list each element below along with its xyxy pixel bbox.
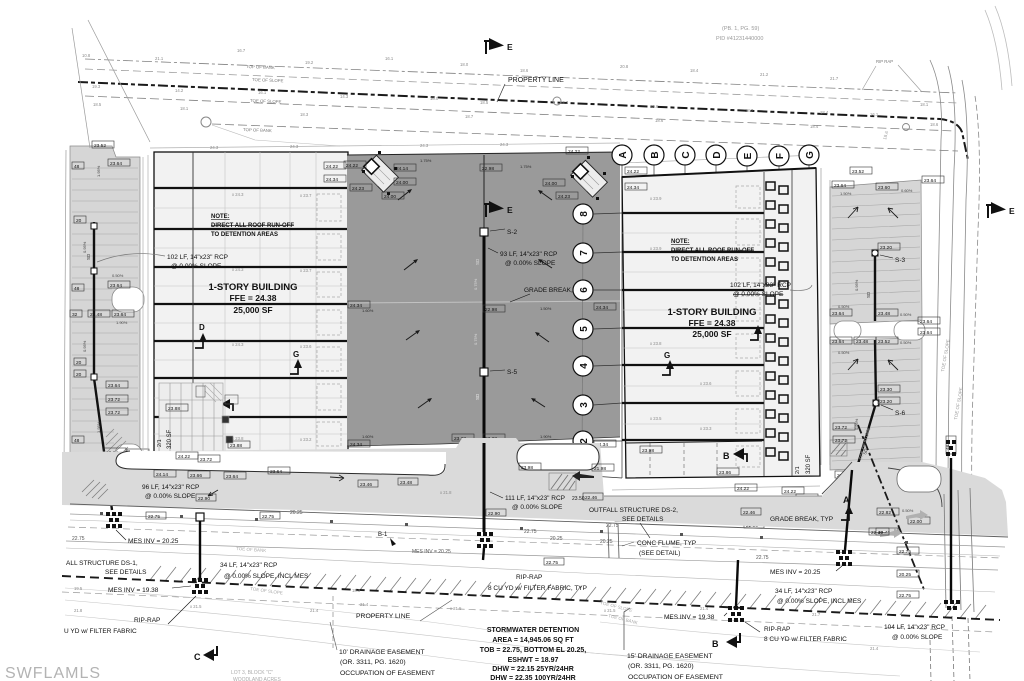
svg-text:48: 48 [74,286,80,292]
svg-text:23.98: 23.98 [642,448,654,454]
svg-text:1.60%: 1.60% [362,308,374,313]
svg-text:1.75%: 1.75% [420,158,432,163]
svg-text:22.75: 22.75 [756,555,769,561]
svg-text:3: 3 [579,402,590,408]
svg-text:SD: SD [475,258,480,265]
svg-text:23.64: 23.64 [832,339,844,345]
svg-text:25,000 SF: 25,000 SF [233,305,272,315]
svg-text:x 24.3: x 24.3 [232,267,244,272]
svg-text:@ 0.00% SLOPE: @ 0.00% SLOPE [733,291,784,298]
svg-text:0.95%: 0.95% [854,279,859,291]
svg-text:@ 0.00% SLOPE: @ 0.00% SLOPE [512,504,563,511]
svg-text:RIP-RAP: RIP-RAP [134,617,160,624]
svg-text:FFE = 24.38: FFE = 24.38 [229,293,276,303]
svg-text:18.6: 18.6 [650,104,659,109]
svg-text:23.64: 23.64 [832,311,844,317]
svg-text:23.48: 23.48 [400,480,412,486]
svg-text:21.1: 21.1 [155,56,164,61]
svg-text:E: E [1009,206,1015,216]
svg-text:x 23.3: x 23.3 [700,426,712,431]
svg-text:1.90%: 1.90% [116,320,128,325]
svg-text:23.20: 23.20 [880,399,892,405]
svg-text:23.72: 23.72 [200,457,212,463]
svg-text:1.50%: 1.50% [840,191,852,196]
svg-text:23.52: 23.52 [878,339,890,345]
svg-text:PROPERTY LINE: PROPERTY LINE [356,613,411,620]
svg-text:0.75%: 0.75% [473,333,478,345]
svg-text:DIRECT ALL ROOF RUN-OFF: DIRECT ALL ROOF RUN-OFF [211,223,294,229]
svg-text:22.75: 22.75 [546,560,558,566]
svg-text:S-5: S-5 [507,369,518,376]
svg-text:23.64: 23.64 [110,161,122,167]
svg-text:0.50%: 0.50% [838,350,850,355]
svg-text:C: C [194,652,201,662]
svg-text:24.22: 24.22 [568,149,580,155]
svg-text:1-STORY BUILDING: 1-STORY BUILDING [667,307,756,318]
svg-text:93 LF, 14"x23" RCP: 93 LF, 14"x23" RCP [500,251,557,258]
svg-text:23.64: 23.64 [226,474,238,480]
svg-text:18.6: 18.6 [655,118,664,123]
svg-text:DIRECT ALL ROOF RUN-OFF: DIRECT ALL ROOF RUN-OFF [671,248,754,254]
svg-text:2/1: 2/1 [157,439,163,447]
svg-text:19.5: 19.5 [74,586,83,591]
svg-text:U YD w/ FILTER FABRIC: U YD w/ FILTER FABRIC [64,628,137,635]
svg-text:E: E [743,152,754,159]
svg-text:23.64: 23.64 [270,469,282,475]
svg-text:18.7: 18.7 [745,108,754,113]
svg-text:23.72: 23.72 [835,425,847,431]
svg-text:23.64: 23.64 [834,183,846,189]
svg-text:S-3: S-3 [895,257,906,264]
svg-text:x 23.9: x 23.9 [650,246,662,251]
svg-text:24.34: 24.34 [596,305,608,311]
svg-text:22.75: 22.75 [72,536,85,542]
svg-text:102 LF, 14"x23" RCP: 102 LF, 14"x23" RCP [167,254,228,261]
svg-text:x 23.2: x 23.2 [300,437,312,442]
svg-text:102 LF, 14"x23" RCP: 102 LF, 14"x23" RCP [730,282,791,289]
svg-text:E: E [507,205,513,215]
svg-text:B-1: B-1 [378,532,388,538]
svg-text:24.3: 24.3 [500,142,509,147]
svg-text:19.3: 19.3 [92,84,101,89]
svg-text:0.50%: 0.50% [900,340,912,345]
svg-text:S-6: S-6 [895,410,906,417]
svg-text:34 LF, 14"x23" RCP: 34 LF, 14"x23" RCP [220,562,277,569]
svg-text:1.50%: 1.50% [540,306,552,311]
svg-text:23.64: 23.64 [114,312,126,318]
svg-text:18.0: 18.0 [430,96,439,101]
svg-text:8 CU YD w/ FILTER FABRIC, TYP: 8 CU YD w/ FILTER FABRIC, TYP [488,585,587,592]
svg-text:18.4: 18.4 [690,68,699,73]
svg-text:24.23: 24.23 [352,186,364,192]
svg-text:B: B [723,451,730,461]
svg-text:ALL STRUCTURE DS-1,: ALL STRUCTURE DS-1, [66,560,138,567]
svg-text:MES INV = 20.25: MES INV = 20.25 [412,549,451,555]
svg-text:23.64: 23.64 [920,319,932,325]
svg-text:20.25: 20.25 [550,536,563,542]
svg-text:23.46: 23.46 [360,482,372,488]
svg-text:14.2: 14.2 [175,88,184,93]
svg-text:18.5: 18.5 [480,100,489,105]
svg-text:(OR. 3311, PG. 1620): (OR. 3311, PG. 1620) [340,659,406,666]
svg-text:x 23.8: x 23.8 [650,341,662,346]
svg-text:x 23.5: x 23.5 [650,416,662,421]
svg-text:16.1: 16.1 [870,112,879,117]
svg-text:24.34: 24.34 [627,185,639,191]
svg-text:OCCUPATION OF EASEMENT: OCCUPATION OF EASEMENT [340,670,435,677]
svg-text:F: F [775,153,786,159]
svg-text:23.20: 23.20 [880,245,892,251]
svg-text:@ 0.00% SLOPE: @ 0.00% SLOPE [892,634,943,641]
svg-text:x 23.7: x 23.7 [300,268,312,273]
svg-text:22.75: 22.75 [148,514,160,520]
svg-text:S-2: S-2 [507,229,518,236]
svg-text:SD: SD [475,393,480,400]
svg-text:18.5: 18.5 [93,102,102,107]
svg-text:24.22: 24.22 [784,489,796,495]
svg-text:SEE DETAILS: SEE DETAILS [622,516,664,523]
svg-text:8 CU YD w/ FILTER FABRIC: 8 CU YD w/ FILTER FABRIC [764,636,847,643]
svg-text:RIP RAP: RIP RAP [876,59,893,64]
svg-text:21.2: 21.2 [760,72,769,77]
svg-text:MES INV = 20.25: MES INV = 20.25 [128,538,179,545]
svg-text:22.75: 22.75 [899,549,911,555]
svg-text:x 23.9: x 23.9 [650,196,662,201]
svg-text:23.48: 23.48 [856,339,868,345]
svg-text:16.7: 16.7 [237,48,246,53]
svg-text:1.75%: 1.75% [520,164,532,169]
svg-text:4: 4 [579,363,590,369]
svg-text:16.1: 16.1 [258,90,267,95]
svg-text:PID #41231440000: PID #41231440000 [716,36,763,42]
svg-text:B: B [712,639,719,649]
svg-text:1-STORY BUILDING: 1-STORY BUILDING [208,282,297,293]
svg-text:22.46: 22.46 [871,530,883,536]
svg-text:20.25: 20.25 [290,510,303,516]
svg-text:23.48: 23.48 [90,312,102,318]
svg-text:104 LF, 14"x23" RCP: 104 LF, 14"x23" RCP [884,624,945,631]
svg-text:SWFLAMLS: SWFLAMLS [5,665,101,681]
svg-text:G: G [293,350,299,359]
svg-text:1.95%: 1.95% [96,421,101,433]
svg-text:18.7: 18.7 [465,114,474,119]
svg-text:25,000 SF: 25,000 SF [692,329,731,339]
svg-text:23.88: 23.88 [168,406,180,412]
svg-text:1.60%: 1.60% [362,434,374,439]
svg-text:x 23.6: x 23.6 [700,381,712,386]
svg-text:14.7: 14.7 [560,100,569,105]
svg-text:23.52: 23.52 [94,143,106,149]
svg-text:WOODLAND ACRES: WOODLAND ACRES [233,677,281,681]
svg-text:22.75: 22.75 [262,514,274,520]
svg-text:24.3: 24.3 [420,143,429,148]
svg-text:32: 32 [72,312,78,318]
svg-text:PROPERTY LINE: PROPERTY LINE [508,77,564,84]
svg-text:14.3: 14.3 [340,94,349,99]
svg-text:RIP-RAP: RIP-RAP [516,574,542,581]
svg-text:48: 48 [74,438,80,444]
svg-text:@ 0.00% SLOPE: @ 0.00% SLOPE [145,493,196,500]
svg-text:D: D [199,323,205,332]
svg-text:320 SF: 320 SF [167,429,173,449]
svg-text:21.8: 21.8 [74,608,83,613]
svg-text:10' DRAINAGE EASEMENT: 10' DRAINAGE EASEMENT [339,649,425,656]
svg-text:TOB = 22.75, BOTTOM EL 20.25,: TOB = 22.75, BOTTOM EL 20.25, [480,647,586,654]
svg-text:C: C [681,151,692,158]
svg-text:21.4: 21.4 [360,602,369,607]
svg-text:23.48: 23.48 [878,311,890,317]
svg-text:E: E [507,42,513,52]
svg-text:GRADE BREAK, TYP: GRADE BREAK, TYP [770,516,833,523]
svg-text:24.22: 24.22 [737,486,749,492]
svg-text:SD: SD [866,291,871,298]
svg-text:24.34: 24.34 [350,303,362,309]
svg-text:24.34: 24.34 [326,177,338,183]
svg-text:23.66: 23.66 [190,473,202,479]
svg-text:320 SF: 320 SF [806,454,812,474]
svg-text:x 23.8: x 23.8 [232,436,244,441]
svg-text:20: 20 [76,360,82,366]
svg-text:20: 20 [76,218,82,224]
svg-text:22.75: 22.75 [899,593,911,599]
svg-text:20: 20 [76,372,82,378]
svg-text:x 21.5: x 21.5 [604,608,616,613]
svg-text:ESHWT = 18.97: ESHWT = 18.97 [508,657,559,664]
svg-text:FFE = 24.38: FFE = 24.38 [688,318,735,328]
svg-text:D: D [712,151,723,158]
svg-text:21.4: 21.4 [700,606,709,611]
svg-text:NOTE:: NOTE: [671,239,690,245]
svg-text:19.2: 19.2 [305,60,314,65]
svg-text:RIP-RAP: RIP-RAP [764,626,790,633]
svg-text:21.4: 21.4 [870,646,879,651]
svg-text:34 LF, 14"x23" RCP: 34 LF, 14"x23" RCP [775,588,832,595]
svg-text:x 24.3: x 24.3 [232,342,244,347]
svg-text:0.50%: 0.50% [900,312,912,317]
svg-text:18.4: 18.4 [810,124,819,129]
svg-text:(SEE DETAIL): (SEE DETAIL) [639,550,680,557]
svg-text:24.3: 24.3 [210,145,219,150]
svg-text:(PB. 1, PG. 59): (PB. 1, PG. 59) [722,26,759,32]
svg-text:24.22: 24.22 [178,454,190,460]
svg-text:x 23.7: x 23.7 [300,193,312,198]
svg-text:22.98: 22.98 [482,166,494,172]
svg-text:0.60%: 0.60% [901,188,913,193]
svg-text:1.90%: 1.90% [540,434,552,439]
svg-text:TO DETENTION AREAS: TO DETENTION AREAS [671,257,738,263]
svg-text:A: A [618,151,629,158]
svg-text:23.86: 23.86 [719,470,731,476]
svg-text:24.22: 24.22 [326,164,338,170]
svg-text:16.1: 16.1 [385,56,394,61]
svg-text:23.64: 23.64 [920,330,932,336]
svg-text:18.3: 18.3 [300,112,309,117]
svg-text:@ 0.00% SLOPE, INCL MES: @ 0.00% SLOPE, INCL MES [777,598,862,605]
svg-text:0.95%: 0.95% [82,340,87,352]
svg-text:2: 2 [579,438,590,444]
svg-text:5: 5 [579,326,590,332]
svg-text:x 21.8: x 21.8 [440,490,452,495]
svg-text:8: 8 [579,211,590,217]
svg-text:1.95%: 1.95% [96,165,101,177]
svg-text:OCCUPATION OF EASEMENT: OCCUPATION OF EASEMENT [628,674,723,681]
svg-text:SEE DETAILS: SEE DETAILS [105,569,147,576]
svg-text:@ 0.00% SLOPE: @ 0.00% SLOPE [171,263,222,270]
svg-text:23.88: 23.88 [230,443,242,449]
svg-text:A: A [843,495,850,505]
svg-text:DHW = 22.15 25YR/24HR: DHW = 22.15 25YR/24HR [492,666,574,673]
svg-text:STORMWATER DETENTION: STORMWATER DETENTION [487,627,579,634]
svg-text:24.23: 24.23 [558,194,570,200]
svg-text:21.7: 21.7 [830,76,839,81]
svg-text:24.00: 24.00 [545,181,557,187]
svg-text:6: 6 [579,287,590,293]
svg-text:24.34: 24.34 [350,442,362,448]
svg-text:18.6: 18.6 [520,68,529,73]
svg-text:0.50%: 0.50% [112,273,124,278]
svg-text:18.3: 18.3 [352,588,361,593]
svg-text:0.75%: 0.75% [473,278,478,290]
svg-text:22.00: 22.00 [910,519,922,525]
svg-text:22.46: 22.46 [743,510,755,516]
svg-text:MES INV = 20.25: MES INV = 20.25 [770,569,821,576]
svg-text:MES INV = 19.38: MES INV = 19.38 [664,614,715,621]
svg-text:24.14: 24.14 [396,166,408,172]
svg-text:22.46: 22.46 [585,495,597,501]
svg-text:22.98: 22.98 [485,307,497,313]
svg-text:SD: SD [86,253,91,260]
svg-text:20.25: 20.25 [600,539,613,545]
svg-text:18.4: 18.4 [820,110,829,115]
svg-text:G: G [805,151,816,159]
svg-text:0.95%: 0.95% [82,241,87,253]
svg-text:24.00: 24.00 [396,180,408,186]
svg-text:21.4: 21.4 [310,608,319,613]
svg-text:96 LF, 14"x23" RCP: 96 LF, 14"x23" RCP [142,484,199,491]
svg-text:18.6: 18.6 [930,122,939,127]
svg-text:7: 7 [579,250,590,256]
svg-text:23.30: 23.30 [880,387,892,393]
svg-text:B: B [650,151,661,158]
svg-text:0.50%: 0.50% [902,508,914,513]
svg-text:20.8: 20.8 [620,64,629,69]
svg-text:LOT 3, BLOCK "C": LOT 3, BLOCK "C" [231,670,273,676]
svg-text:21.7: 21.7 [812,612,821,617]
svg-text:DHW = 22.35 100YR/24HR: DHW = 22.35 100YR/24HR [490,675,575,681]
svg-text:22.75: 22.75 [606,523,619,529]
svg-text:23.64: 23.64 [110,283,122,289]
svg-text:23.64: 23.64 [108,383,120,389]
svg-text:24.22: 24.22 [346,163,358,169]
svg-text:G: G [664,351,670,360]
svg-text:MES INV = 19.38: MES INV = 19.38 [108,587,159,594]
svg-text:22.90: 22.90 [488,511,500,517]
svg-text:24.14: 24.14 [156,472,168,478]
svg-text:23.60: 23.60 [878,185,890,191]
svg-text:23.64: 23.64 [924,178,936,184]
svg-text:24.3: 24.3 [290,144,299,149]
svg-text:18.1: 18.1 [180,106,189,111]
svg-text:x 24.3: x 24.3 [232,192,244,197]
svg-text:0.50%: 0.50% [838,304,850,309]
svg-text:2/1: 2/1 [795,466,801,474]
svg-text:x 23.6: x 23.6 [300,344,312,349]
svg-text:48: 48 [74,164,80,170]
svg-text:24.22: 24.22 [627,169,639,175]
svg-text:23.72: 23.72 [108,410,120,416]
svg-text:111 LF, 14"x23" RCP: 111 LF, 14"x23" RCP [505,495,565,502]
svg-text:x 21.5: x 21.5 [450,606,462,611]
svg-text:20.25: 20.25 [899,572,911,578]
svg-text:23.98: 23.98 [521,465,533,471]
svg-text:22.75: 22.75 [524,529,537,535]
svg-text:CONC FLUME, TYP: CONC FLUME, TYP [637,540,696,547]
svg-text:AREA = 14,945.06 SQ FT: AREA = 14,945.06 SQ FT [492,637,574,644]
svg-text:0.95%: 0.95% [854,418,859,430]
svg-text:(OR. 3311, PG. 1620): (OR. 3311, PG. 1620) [628,663,694,670]
svg-text:15' DRAINAGE EASEMENT: 15' DRAINAGE EASEMENT [627,653,713,660]
svg-text:NOTE:: NOTE: [211,214,230,220]
svg-text:24.00: 24.00 [384,194,396,200]
svg-text:@ 0.00% SLOPE, INCL MES: @ 0.00% SLOPE, INCL MES [224,573,309,580]
svg-text:x 21.5: x 21.5 [190,604,202,609]
svg-text:10.8: 10.8 [82,53,91,58]
svg-text:21.98: 21.98 [594,466,606,472]
svg-text:22.90: 22.90 [198,496,210,502]
svg-text:23.72: 23.72 [108,397,120,403]
svg-text:18.1: 18.1 [920,102,929,107]
svg-text:23.52: 23.52 [852,169,864,175]
svg-text:18.0: 18.0 [460,62,469,67]
svg-text:TO DETENTION AREAS: TO DETENTION AREAS [211,232,278,238]
svg-text:22.82: 22.82 [879,510,891,516]
svg-text:OUTFALL STRUCTURE DS-2,: OUTFALL STRUCTURE DS-2, [589,507,678,514]
